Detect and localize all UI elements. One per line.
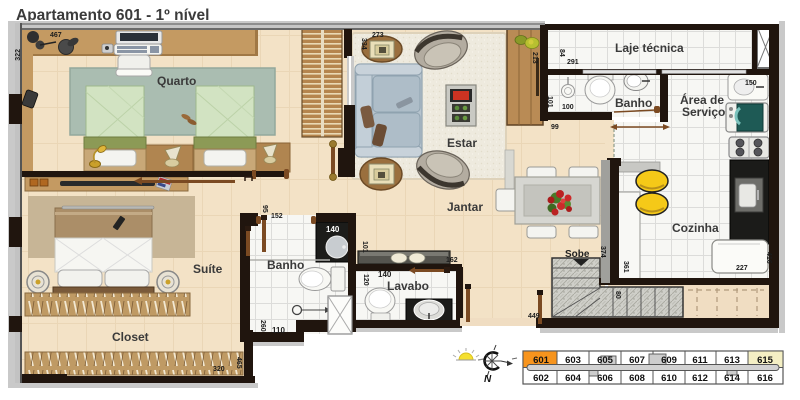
svg-text:467: 467 [50, 32, 62, 39]
svg-text:616: 616 [757, 373, 773, 384]
svg-text:140: 140 [326, 225, 340, 234]
svg-text:606: 606 [597, 373, 613, 384]
svg-text:84: 84 [558, 49, 565, 57]
svg-text:615: 615 [757, 355, 774, 366]
svg-text:449: 449 [528, 313, 540, 320]
svg-text:80: 80 [614, 291, 621, 299]
svg-text:608: 608 [629, 373, 645, 384]
svg-text:291: 291 [567, 59, 579, 66]
svg-text:273: 273 [372, 32, 384, 39]
svg-text:605: 605 [597, 355, 614, 366]
svg-text:Banho: Banho [267, 258, 304, 272]
svg-text:Quarto: Quarto [157, 74, 196, 88]
svg-text:Lavabo: Lavabo [387, 279, 429, 293]
svg-text:140: 140 [378, 270, 392, 279]
svg-text:Jantar: Jantar [447, 200, 483, 214]
svg-text:Suíte: Suíte [193, 262, 223, 276]
svg-text:Laje técnica: Laje técnica [615, 41, 684, 55]
svg-text:N: N [484, 374, 492, 385]
svg-text:Cozinha: Cozinha [672, 221, 719, 235]
svg-text:Estar: Estar [447, 136, 477, 150]
svg-text:Serviço: Serviço [682, 105, 725, 119]
svg-text:150: 150 [745, 80, 757, 87]
svg-text:604: 604 [565, 373, 582, 384]
svg-text:101: 101 [546, 96, 553, 108]
svg-text:Sobe: Sobe [565, 249, 590, 260]
svg-text:610: 610 [661, 373, 677, 384]
svg-text:120: 120 [362, 274, 369, 286]
svg-text:611: 611 [692, 355, 708, 366]
svg-text:361: 361 [622, 261, 629, 273]
svg-text:Closet: Closet [112, 330, 149, 344]
svg-text:110: 110 [272, 326, 285, 335]
svg-text:99: 99 [551, 124, 559, 131]
svg-text:322: 322 [15, 49, 22, 61]
svg-text:Banho: Banho [615, 96, 652, 110]
svg-text:614: 614 [724, 373, 741, 384]
svg-text:613: 613 [724, 355, 740, 366]
svg-text:101: 101 [361, 241, 368, 253]
svg-text:213: 213 [531, 52, 538, 64]
svg-text:612: 612 [692, 373, 708, 384]
svg-text:416: 416 [765, 252, 772, 264]
svg-text:601: 601 [533, 355, 550, 366]
svg-text:602: 602 [533, 373, 549, 384]
svg-text:603: 603 [565, 355, 581, 366]
svg-text:609: 609 [661, 355, 677, 366]
svg-text:162: 162 [446, 257, 458, 264]
svg-text:152: 152 [271, 213, 283, 220]
svg-text:334: 334 [360, 38, 367, 50]
svg-text:374: 374 [599, 246, 606, 258]
svg-text:465: 465 [235, 357, 242, 369]
svg-text:260: 260 [259, 320, 266, 332]
svg-text:607: 607 [629, 355, 645, 366]
svg-text:100: 100 [562, 104, 574, 111]
svg-text:95: 95 [261, 205, 268, 213]
svg-text:320: 320 [213, 366, 225, 373]
svg-text:227: 227 [736, 265, 748, 272]
